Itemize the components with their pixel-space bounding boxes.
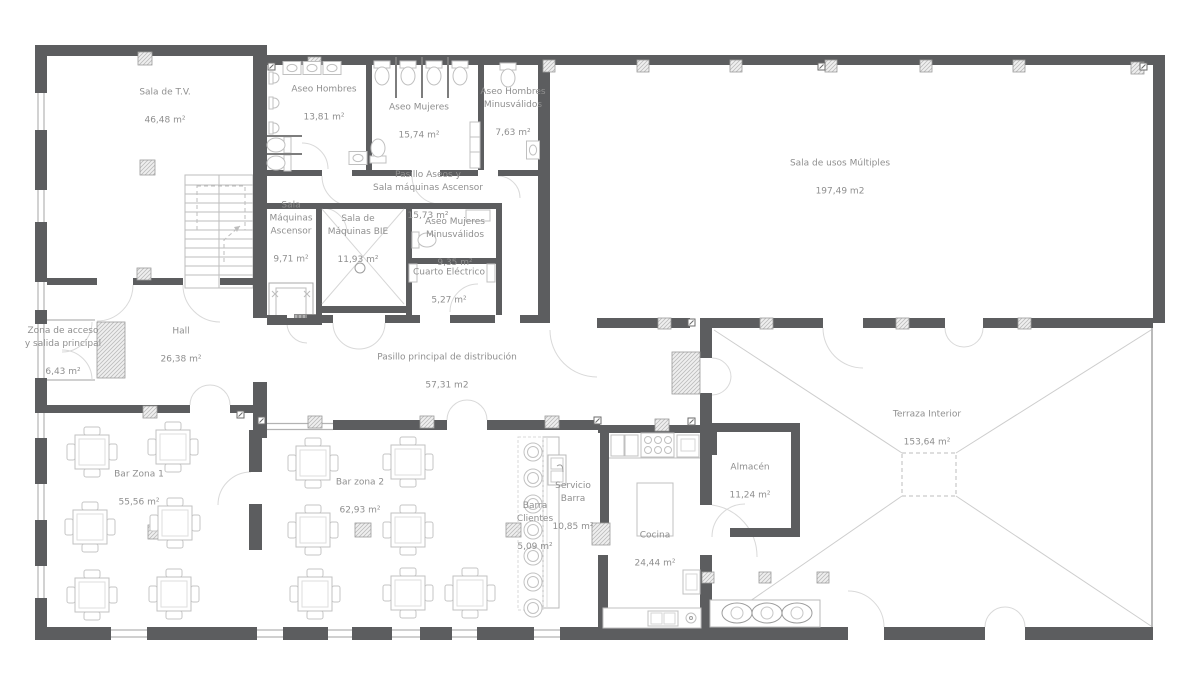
terrace-markings bbox=[714, 323, 1152, 628]
room-label-aseo-hombres: Aseo Hombres 13,81 m² bbox=[291, 71, 356, 138]
room-label-sala-maquinas-bie: Sala de Máquinas BIE 11,93 m² bbox=[328, 200, 388, 280]
room-label-sala-maquinas-ascensor: Sala Máquinas Ascensor 9,71 m² bbox=[269, 187, 312, 280]
room-label-terraza-interior: Terraza Interior 153,64 m² bbox=[893, 396, 961, 463]
room-label-sala-tv: Sala de T.V. 46,48 m² bbox=[139, 74, 190, 141]
room-label-pasillo-principal: Pasillo principal de distribución 57,31 … bbox=[377, 339, 517, 406]
room-label-almacen: Almacén 11,24 m² bbox=[729, 449, 770, 516]
room-label-aseo-mujeres: Aseo Mujeres 15,74 m² bbox=[389, 89, 449, 156]
room-label-cuarto-electrico: Cuarto Eléctrico 5,27 m² bbox=[413, 254, 485, 321]
floor-plan: Sala de T.V. 46,48 m² Aseo Hombres 13,81… bbox=[0, 0, 1200, 686]
room-label-hall: Hall 26,38 m² bbox=[160, 313, 201, 380]
stairs-icon bbox=[185, 175, 253, 288]
room-label-cocina: Cocina 24,44 m² bbox=[634, 517, 675, 584]
room-label-bar-zona-2: Bar zona 2 62,93 m² bbox=[336, 464, 384, 531]
room-label-sala-usos-multiples: Sala de usos Múltiples 197,49 m2 bbox=[790, 145, 890, 212]
room-label-aseo-hombres-minusvalidos: Aseo Hombres Minusválidos 7,63 m² bbox=[480, 73, 545, 153]
room-label-barra-clientes: Barra Clientes 5,09 m² bbox=[517, 487, 553, 567]
room-label-bar-zona-1: Bar Zona 1 55,56 m² bbox=[114, 456, 164, 523]
room-label-zona-acceso: Zona de acceso y salida principal 6,43 m… bbox=[25, 312, 101, 392]
walls bbox=[35, 45, 1165, 640]
room-label-servicio-barra: Servicio Barra 10,85 m² bbox=[552, 467, 593, 547]
planter-box bbox=[710, 600, 820, 627]
